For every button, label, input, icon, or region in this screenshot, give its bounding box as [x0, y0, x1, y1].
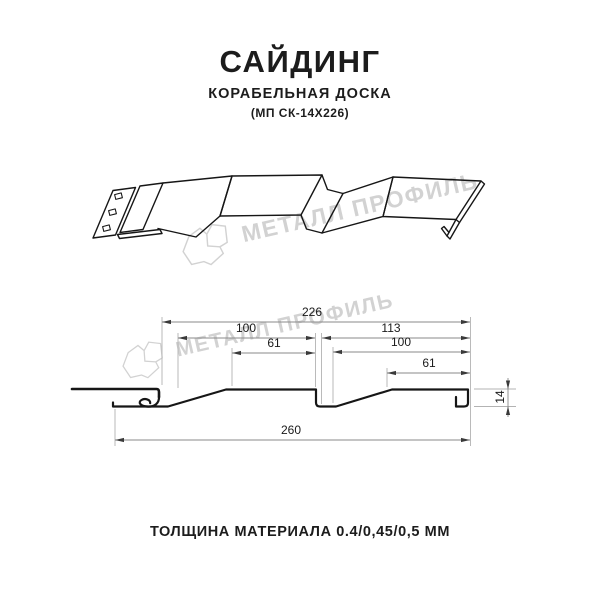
main-profile-outline: [113, 390, 468, 407]
dim-label-cover-width: 226: [302, 305, 322, 319]
section-profile: [72, 389, 468, 407]
dim-label-board2-flat: 61: [422, 356, 435, 370]
dim-label-profile-depth: 14: [493, 390, 507, 403]
page-title: САЙДИНГ: [0, 46, 600, 79]
dim-label-overall-width: 260: [281, 423, 301, 437]
product-code: (МП СК-14Х226): [0, 106, 600, 120]
dim-label-board1-pitch: 100: [236, 321, 256, 335]
thickness-note: ТОЛЩИНА МАТЕРИАЛА 0.4/0,45/0,5 ММ: [0, 524, 600, 540]
panel-faces: [158, 175, 481, 237]
dim-label-board2-width: 100: [391, 335, 411, 349]
header: САЙДИНГ КОРАБЕЛЬНАЯ ДОСКА (МП СК-14Х226): [0, 0, 600, 120]
lock-fold: [118, 183, 164, 239]
page-subtitle: КОРАБЕЛЬНАЯ ДОСКА: [0, 86, 600, 102]
extension-lines: [115, 317, 516, 446]
dimension-lines: [115, 322, 508, 440]
dim-label-board2-pitch: 113: [381, 321, 400, 335]
adjacent-panel-edge: [72, 389, 159, 397]
dim-label-board1-flat: 61: [267, 336, 280, 350]
lock-roll: [140, 396, 159, 407]
product-drawing-card: САЙДИНГ КОРАБЕЛЬНАЯ ДОСКА (МП СК-14Х226)…: [0, 0, 600, 600]
profile-3d-drawing: [93, 175, 485, 239]
